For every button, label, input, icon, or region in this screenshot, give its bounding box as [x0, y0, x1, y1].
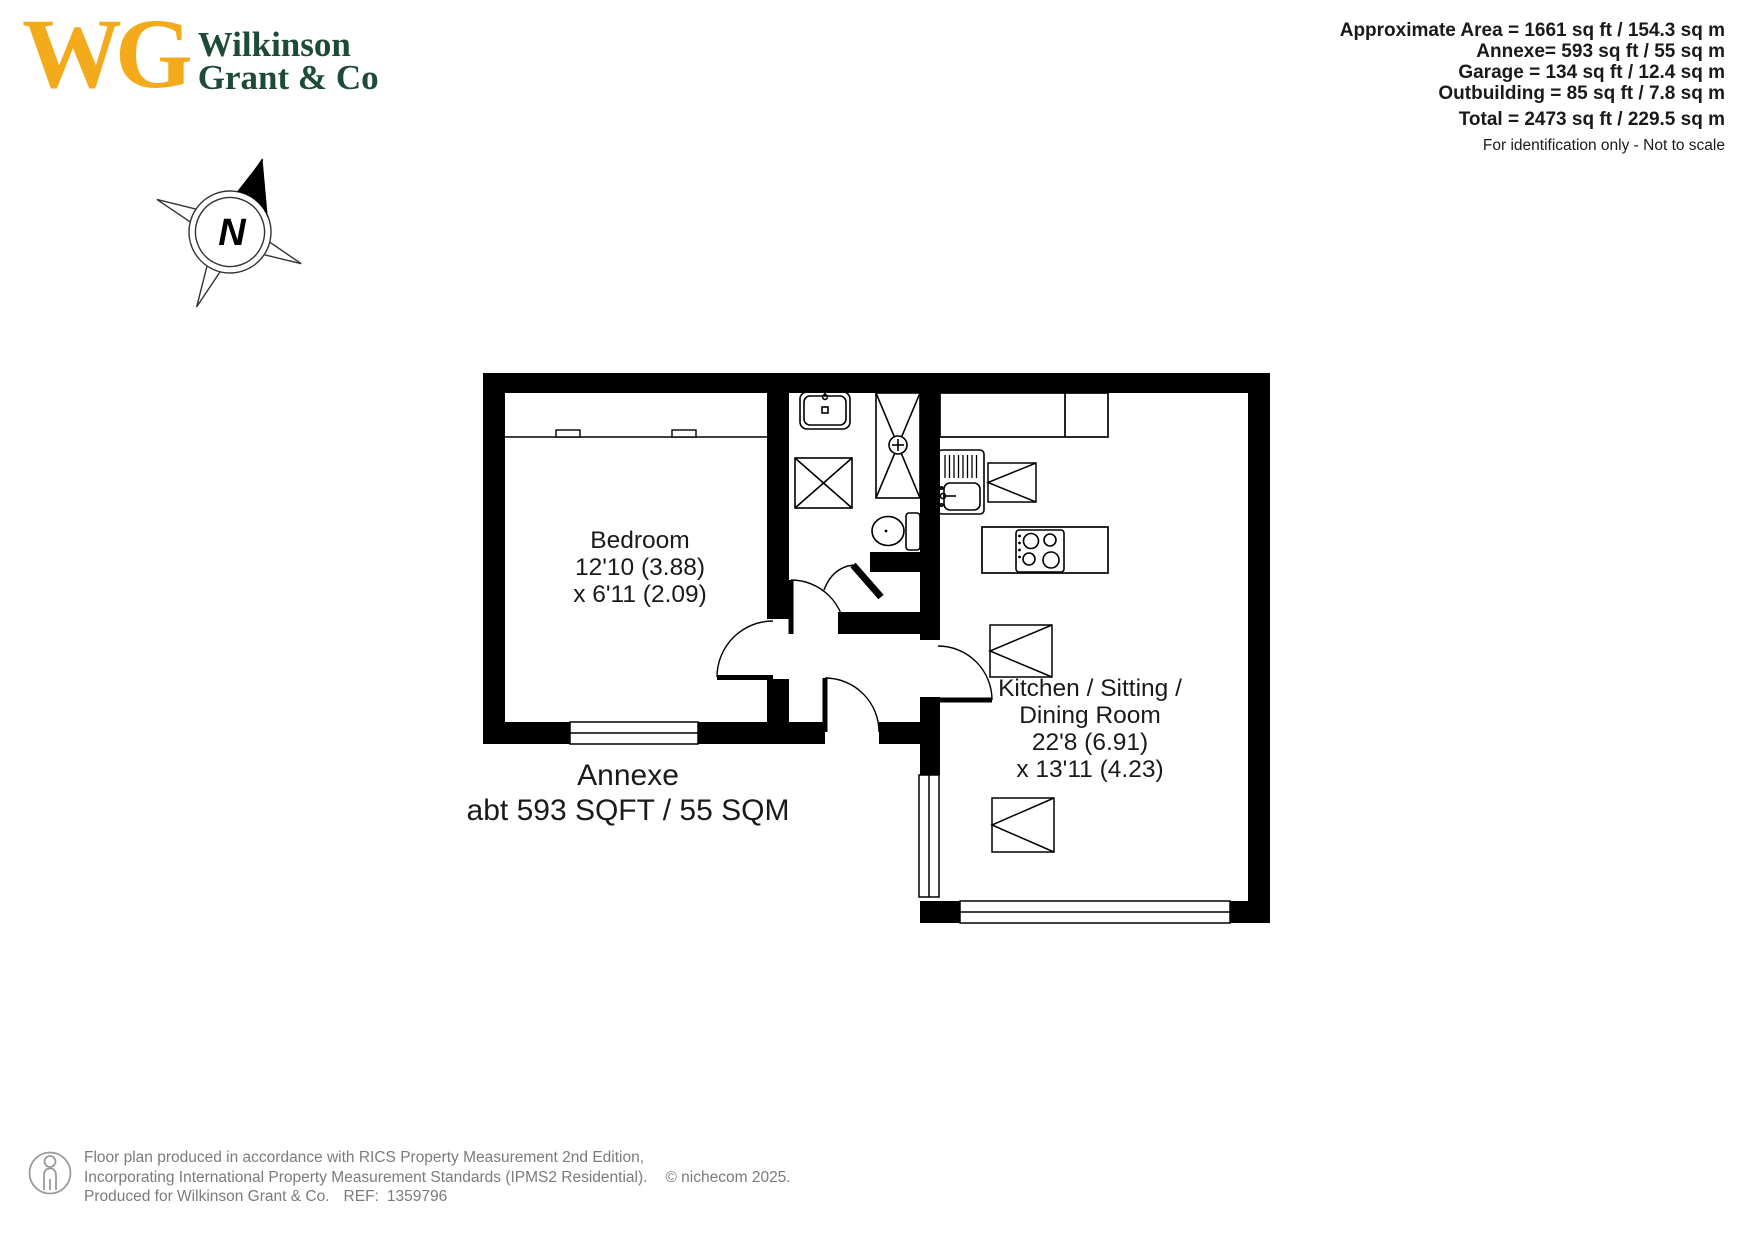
toilet-icon — [872, 513, 920, 550]
shower-tray-icon — [876, 393, 920, 498]
kitchen-sink-icon — [938, 450, 984, 514]
crossed-square-icon — [795, 458, 852, 508]
window — [919, 775, 939, 897]
hob-icon — [1016, 530, 1064, 572]
bedroom-dim1: 12'10 (3.88) — [575, 554, 705, 581]
person-icon — [28, 1148, 74, 1198]
entrance-door — [825, 678, 879, 732]
appliance-box-icon — [988, 463, 1036, 502]
kitchen-dim2: x 13'11 (4.23) — [1016, 756, 1163, 783]
bedroom-wardrobe-line — [505, 430, 767, 437]
annexe-area-label: abt 593 SQFT / 55 SQM — [467, 794, 790, 827]
kitchen-dim1: 22'8 (6.91) — [1032, 729, 1148, 756]
kitchen-door — [938, 646, 992, 700]
annexe-title: Annexe — [577, 759, 679, 792]
disclaimer-line1: Floor plan produced in accordance with R… — [84, 1148, 791, 1168]
appliance-box-icon — [992, 798, 1054, 852]
footer: Floor plan produced in accordance with R… — [28, 1148, 791, 1207]
floor-plan: Bedroom 12'10 (3.88) x 6'11 (2.09) Kitch… — [0, 0, 1755, 1241]
appliance-box-icon — [990, 625, 1052, 677]
kitchen-label-line2: Dining Room — [1019, 702, 1161, 729]
bathroom-door — [791, 580, 845, 634]
window — [570, 722, 698, 744]
ref-number: 1359796 — [387, 1188, 447, 1205]
bedroom-label: Bedroom — [590, 527, 689, 554]
kitchen-label-line1: Kitchen / Sitting / — [998, 675, 1182, 702]
ref-label: REF: — [344, 1188, 379, 1205]
produced-for: Produced for Wilkinson Grant & Co. — [84, 1188, 330, 1205]
disclaimer-line2: Incorporating International Property Mea… — [84, 1169, 647, 1186]
nichecom-credit: © nichecom 2025. — [665, 1169, 790, 1186]
bedroom-door — [717, 621, 773, 678]
bedroom-dim2: x 6'11 (2.09) — [573, 581, 707, 608]
window — [960, 901, 1230, 923]
bathroom-basin-icon — [800, 388, 850, 429]
